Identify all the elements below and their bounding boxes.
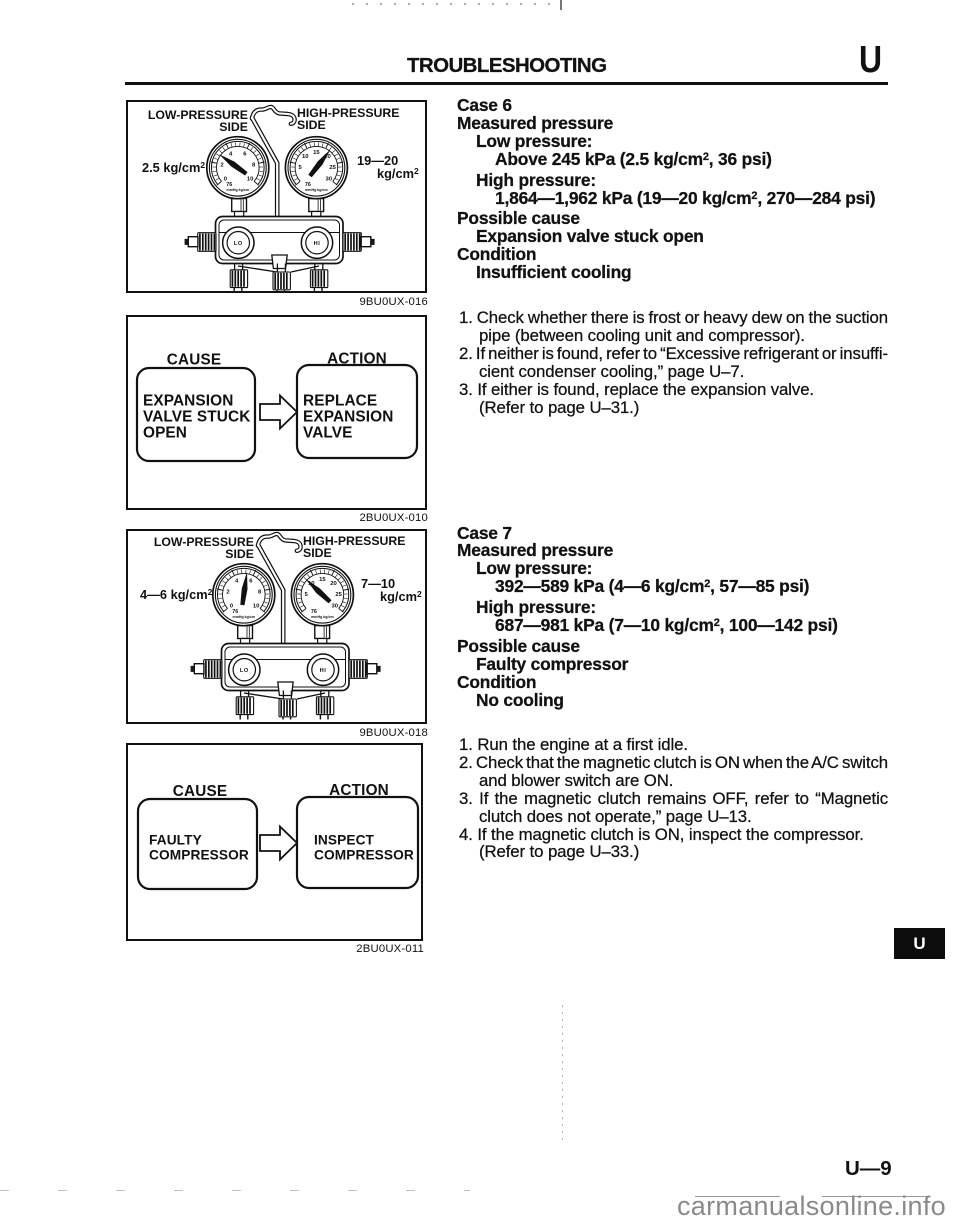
svg-text:mmHg kg/cm: mmHg kg/cm [233,615,256,619]
svg-text:OPEN: OPEN [143,425,187,442]
svg-text:COMPRESSOR: COMPRESSOR [149,848,249,863]
svg-text:FAULTY: FAULTY [149,833,202,848]
svg-text:CAUSE: CAUSE [173,783,228,800]
svg-text:mmHg kg/cm: mmHg kg/cm [305,188,328,192]
svg-text:VALVE: VALVE [303,425,353,442]
svg-text:COMPRESSOR: COMPRESSOR [314,848,414,863]
svg-text:mmHg kg/cm: mmHg kg/cm [311,615,334,619]
svg-text:mmHg kg/cm: mmHg kg/cm [227,188,250,192]
svg-text:LO: LO [234,241,243,247]
svg-text:EXPANSION: EXPANSION [303,409,393,426]
svg-text:25: 25 [329,165,336,171]
svg-text:INSPECT: INSPECT [314,833,375,848]
svg-text:EXPANSION: EXPANSION [143,393,233,410]
svg-text:20: 20 [330,581,337,587]
svg-text:REPLACE: REPLACE [303,393,377,410]
svg-text:10: 10 [247,176,254,182]
svg-text:10: 10 [253,603,260,609]
svg-text:LO: LO [240,668,249,674]
svg-text:15: 15 [313,150,320,156]
svg-text:HI: HI [320,668,327,674]
svg-text:VALVE STUCK: VALVE STUCK [143,409,250,426]
svg-text:30: 30 [326,176,333,182]
svg-text:10: 10 [302,154,309,160]
svg-text:15: 15 [319,577,326,583]
svg-text:30: 30 [332,603,339,609]
svg-text:CAUSE: CAUSE [167,352,222,369]
svg-text:HI: HI [314,241,321,247]
svg-text:25: 25 [335,592,342,598]
